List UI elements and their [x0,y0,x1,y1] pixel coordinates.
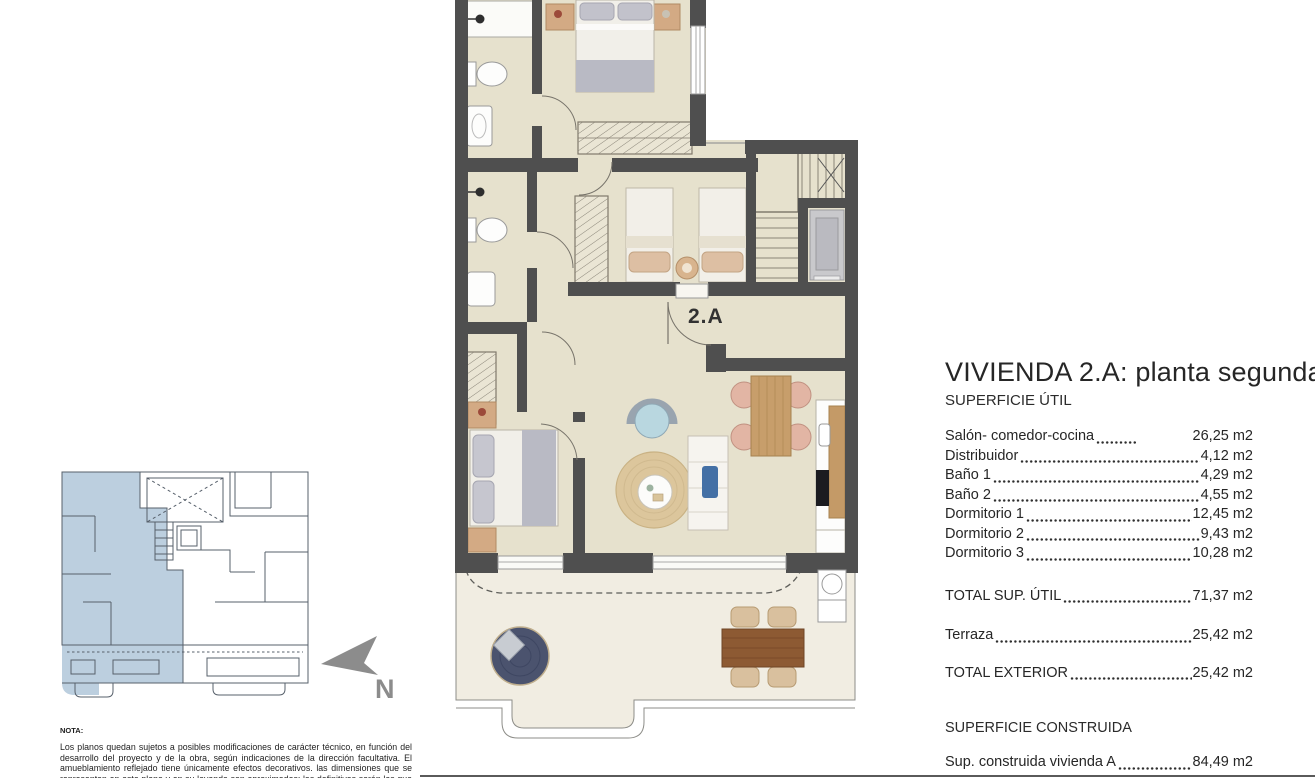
surface-panel: VIVIENDA 2.A: planta segunda SUPERFICIE … [945,357,1253,773]
toilet [477,218,507,242]
note-body: Los planos quedan sujetos a posibles mod… [60,742,412,778]
armchair [635,404,669,438]
table-row: Dormitorio 29,43 m2 [945,525,1253,545]
note: NOTA: Los planos quedan sujetos a posibl… [60,726,412,778]
page: 2.A [0,0,1315,778]
dining-table [751,376,791,456]
terraza-row: Terraza25,42 m2 [945,626,1253,646]
page-title: VIVIENDA 2.A: planta segunda [945,357,1253,387]
table-row: Dormitorio 112,45 m2 [945,505,1253,525]
bedroom-middle [575,188,746,284]
note-heading: NOTA: [60,726,412,735]
shower-head [476,15,485,24]
terrace-chair [768,607,796,627]
util-rows: Salón- comedor-cocina26,25 m2 Distribuid… [945,427,1253,564]
terrace-chair [731,667,759,687]
cooktop [816,470,829,506]
unit-label: 2.A [688,305,724,329]
kitchen-cabinets [829,406,845,518]
table-row: Dormitorio 310,28 m2 [945,544,1253,564]
floor-plan [440,0,910,742]
elevator-door [814,276,840,280]
north-arrow-icon [321,636,378,675]
bath-sink [467,272,495,306]
key-plan [55,452,317,720]
table-row: Baño 24,55 m2 [945,486,1253,506]
table-row: Salón- comedor-cocina26,25 m2 [945,427,1253,447]
util-heading: SUPERFICIE ÚTIL [945,392,1253,410]
sheet-edge-line [420,775,1315,777]
kitchen-sink [819,424,830,446]
construida-heading: SUPERFICIE CONSTRUIDA [945,720,1253,736]
terrace-chair [731,607,759,627]
north-arrow: N [315,628,410,706]
sofa-throw [702,466,718,498]
sink [467,106,492,146]
toilet [477,62,507,86]
entry-threshold [676,284,708,298]
coffee-table [638,475,672,509]
shower-head [476,188,485,197]
highlight-unit [62,472,183,645]
total-exterior-row: TOTAL EXTERIOR25,42 m2 [945,664,1253,684]
nightstand [468,528,496,552]
construida-row: Sup. construida vivienda A84,49 m2 [945,753,1253,773]
blanket [576,60,654,92]
table-row: Baño 14,29 m2 [945,466,1253,486]
terrace-chair [768,667,796,687]
north-label: N [375,674,395,704]
table-row: Distribuidor4,12 m2 [945,447,1253,467]
wardrobe-top [578,122,692,154]
blanket [522,430,556,526]
total-util-row: TOTAL SUP. ÚTIL71,37 m2 [945,587,1253,607]
